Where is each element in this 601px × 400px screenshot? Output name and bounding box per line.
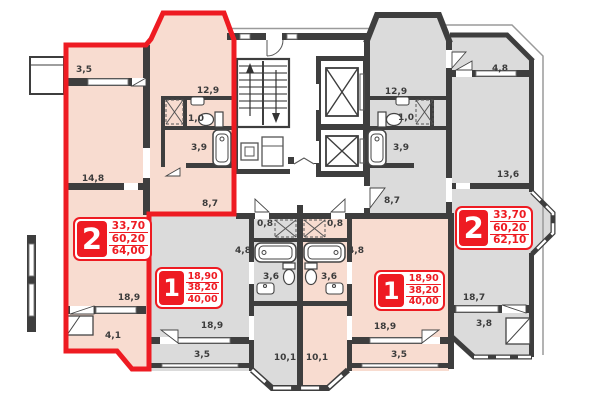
elevator-icon — [314, 59, 368, 174]
apartment-badge-center-right-1room[interactable]: 1 18,90 38,20 40,00 — [374, 270, 445, 311]
apartment-areas: 18,90 38,20 40,00 — [186, 271, 219, 305]
entrance-door-swing-icon — [267, 40, 283, 56]
apartment-badge-right-2room[interactable]: 2 33,70 60,20 62,10 — [455, 206, 533, 250]
area-living: 33,70 — [490, 210, 529, 221]
apartment-areas: 33,70 60,20 64,00 — [109, 221, 148, 257]
area-total: 62,10 — [490, 234, 529, 246]
apartment-type-number: 2 — [77, 221, 107, 257]
apartment-areas: 18,90 38,20 40,00 — [406, 274, 441, 307]
floor-plan-drawing — [0, 0, 601, 400]
apartment-badge-center-left-1room[interactable]: 1 18,90 38,20 40,00 — [155, 267, 223, 309]
apartment-type-number: 2 — [459, 210, 488, 246]
floor-plan: 3,5 14,8 12,9 1,0 3,9 8,7 18,9 4,1 4,8 0… — [0, 0, 601, 400]
area-living: 18,90 — [406, 274, 441, 284]
area-total: 40,00 — [406, 296, 441, 307]
apartment-type-number: 1 — [378, 274, 404, 307]
apartment-type-number: 1 — [159, 271, 184, 305]
trash-chute-icon — [241, 137, 283, 166]
area-total: 40,00 — [186, 293, 219, 305]
area-usable: 60,20 — [490, 221, 529, 233]
neighbour-balcony — [30, 57, 64, 94]
area-total: 64,00 — [109, 245, 148, 257]
area-living: 18,90 — [186, 271, 219, 282]
area-living: 33,70 — [109, 221, 148, 232]
apartment-regions — [66, 13, 553, 389]
area-usable: 60,20 — [109, 232, 148, 244]
apartment-areas: 33,70 60,20 62,10 — [490, 210, 529, 246]
apartment-badge-left-2room[interactable]: 2 33,70 60,20 64,00 — [73, 217, 152, 261]
area-usable: 38,20 — [406, 284, 441, 295]
stairs-icon — [237, 59, 289, 127]
area-usable: 38,20 — [186, 282, 219, 294]
